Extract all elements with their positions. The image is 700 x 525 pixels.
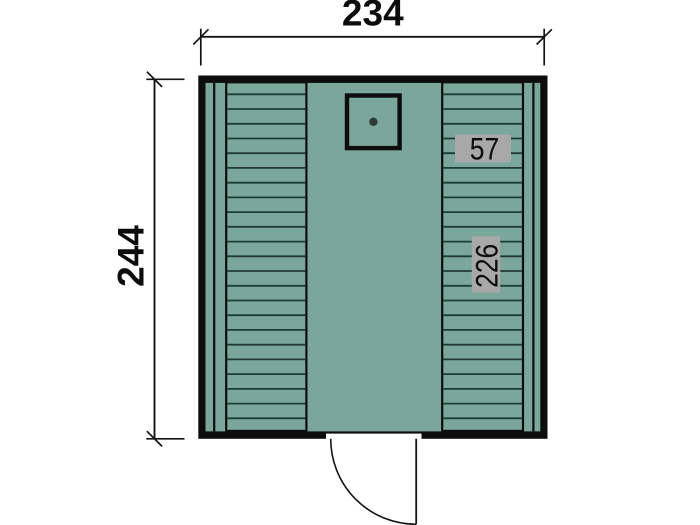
svg-text:244: 244 (111, 225, 152, 287)
svg-text:234: 234 (342, 0, 404, 34)
svg-text:57: 57 (470, 133, 499, 168)
svg-text:226: 226 (471, 244, 506, 288)
